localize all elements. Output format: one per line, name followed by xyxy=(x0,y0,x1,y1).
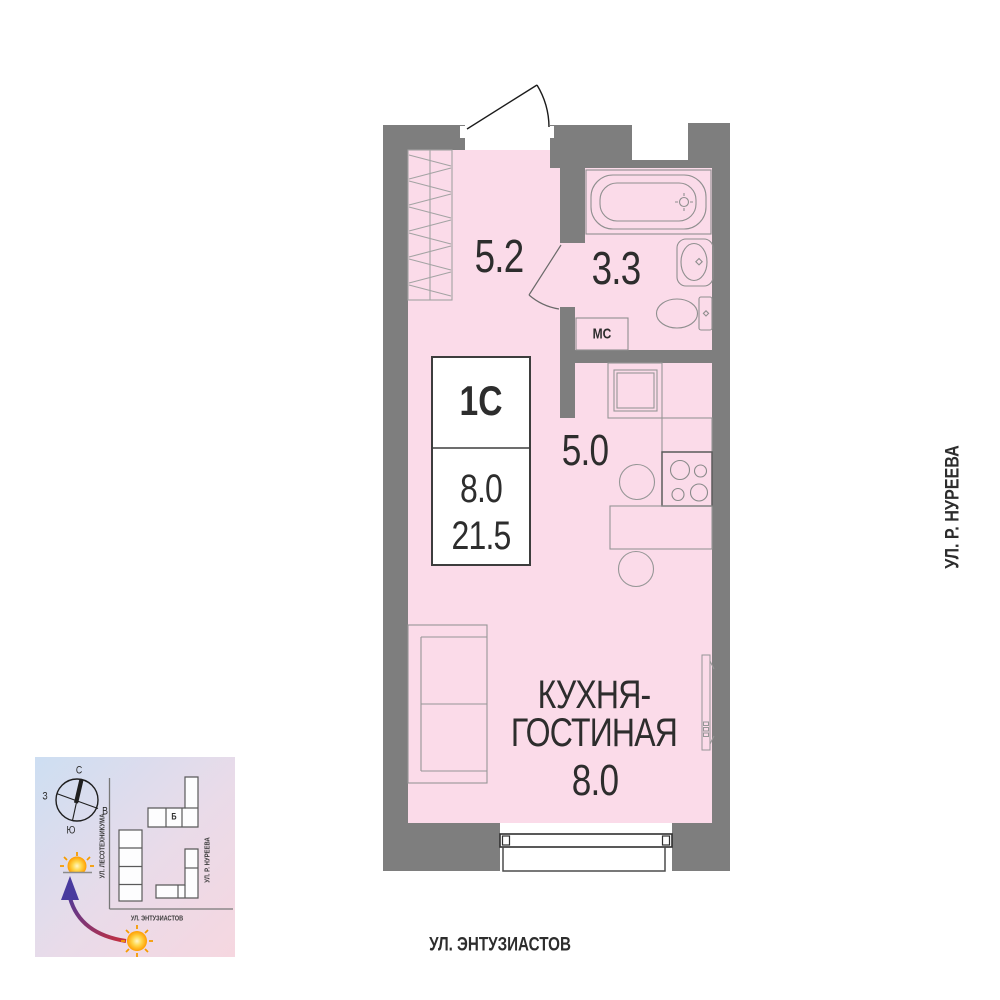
compass-north-label: С xyxy=(76,766,82,777)
area-label-kitchen: 5.0 xyxy=(562,429,609,473)
total-area-value: 21.5 xyxy=(451,516,510,556)
compass-south-label: Ю xyxy=(67,826,76,837)
area-label-living: 8.0 xyxy=(572,759,619,803)
entrance-door-jambs xyxy=(460,126,554,138)
window-icon xyxy=(500,834,672,847)
floorplan-page: 5.2 3.3 5.0 КУХНЯ- ГОСТИНАЯ 8.0 1С 8.0 2… xyxy=(0,0,1000,1000)
washer-label: МС xyxy=(593,327,612,342)
room-title-line2: ГОСТИНАЯ xyxy=(511,713,677,753)
minimap-building-label: Б xyxy=(171,813,176,822)
entrance-door-icon xyxy=(467,85,549,129)
living-area-value: 8.0 xyxy=(460,469,502,509)
street-label-nureeva: УЛ. Р. НУРЕЕВА xyxy=(944,445,963,569)
minimap-street-bottom: УЛ. ЭНТУЗИАСТОВ xyxy=(131,916,183,923)
area-label-hallway: 5.2 xyxy=(475,233,524,279)
room-title-line1: КУХНЯ- xyxy=(538,675,651,715)
minimap-street-left: УЛ. ЛЕСОТЕХНИКУМА xyxy=(100,814,107,879)
street-label-entuziastov: УЛ. ЭНТУЗИАСТОВ xyxy=(429,936,571,955)
area-label-bathroom: 3.3 xyxy=(592,245,641,291)
balcony-icon xyxy=(503,847,665,871)
minimap-street-right: УЛ. Р. НУРЕЕВА xyxy=(205,837,212,883)
compass-west-label: З xyxy=(42,792,47,803)
unit-type-label: 1С xyxy=(460,380,503,422)
